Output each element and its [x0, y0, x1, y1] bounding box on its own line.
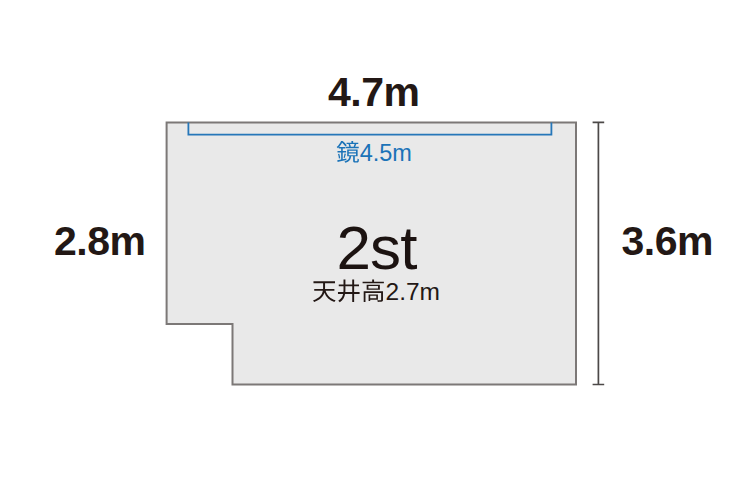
svg-text:3.6m: 3.6m — [621, 218, 712, 264]
svg-text:2st: 2st — [336, 213, 417, 282]
svg-text:2.8m: 2.8m — [54, 218, 145, 264]
svg-text:2.7m: 2.7m — [386, 278, 440, 305]
svg-text:4.7m: 4.7m — [328, 69, 419, 115]
svg-text:4.5m: 4.5m — [360, 140, 412, 166]
